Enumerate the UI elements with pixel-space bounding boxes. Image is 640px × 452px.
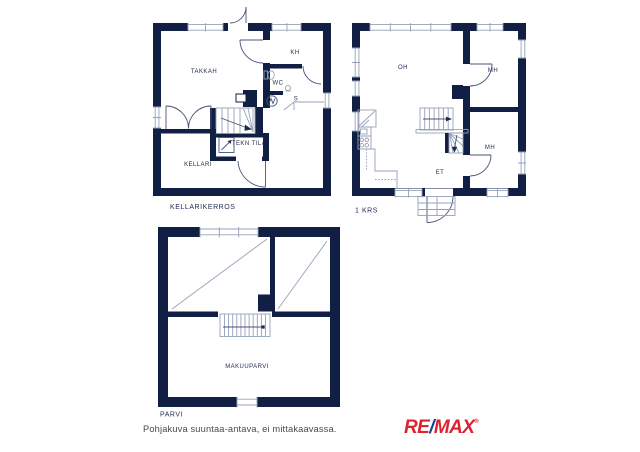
window-icon [352,112,361,131]
room-label-takkah: TAKKAH [191,69,217,75]
room-label-tekn-tila: TEKN TILA [232,141,266,147]
plan-caption-first-floor: 1 KRS [355,208,378,215]
window-icon [188,23,223,33]
room-label-oh: OH [398,65,408,71]
window-icon [323,93,332,108]
window-icon [153,107,162,128]
remax-logo: RE/MAX® [404,417,479,439]
room-label-makuuparvi: MAKUUPARVI [225,364,269,370]
disclaimer-text: Pohjakuva suuntaa-antava, ei mittakaavas… [143,424,337,434]
plan-caption-loft: PARVI [160,412,183,419]
door-icon [228,7,248,32]
room-label-et: ET [436,170,445,176]
floorplan-drawing: TAKKAH KH WC S TEKN TILA KELLARI KELLARI… [0,0,640,452]
room-label-mh-top: MH [488,68,498,74]
porch-steps [418,197,455,216]
first-floor-plan: OH MH MH ET 1 KRS [352,23,527,223]
basement-floor-plan: TAKKAH KH WC S TEKN TILA KELLARI KELLARI… [153,7,332,211]
window-icon [370,23,451,33]
window-icon [200,227,258,238]
plan-caption-basement: KELLARIKERROS [170,204,236,211]
staircase [218,312,272,340]
room-label-kellari: KELLARI [184,162,212,168]
window-icon [272,23,301,33]
room-label-kh: KH [290,50,299,56]
window-icon [352,48,361,77]
window-icon [477,23,503,33]
room-label-wc: WC [273,81,284,87]
window-icon [352,81,361,96]
chimney-block [258,295,270,312]
room-label-s: S [294,97,298,103]
window-icon [518,152,527,174]
window-icon [487,189,508,199]
registered-trademark-icon: ® [474,419,478,425]
window-icon [518,40,527,58]
remax-logo-re: RE [404,417,429,438]
entrance-door-icon [425,189,453,223]
room-label-mh-bottom: MH [485,145,495,151]
chimney-block [452,85,463,99]
loft-floor-plan: MAKUUPARVI PARVI [158,227,340,419]
floorplan-page: TAKKAH KH WC S TEKN TILA KELLARI KELLARI… [0,0,640,452]
window-icon [237,397,257,408]
remax-logo-max: MAX [434,417,474,438]
